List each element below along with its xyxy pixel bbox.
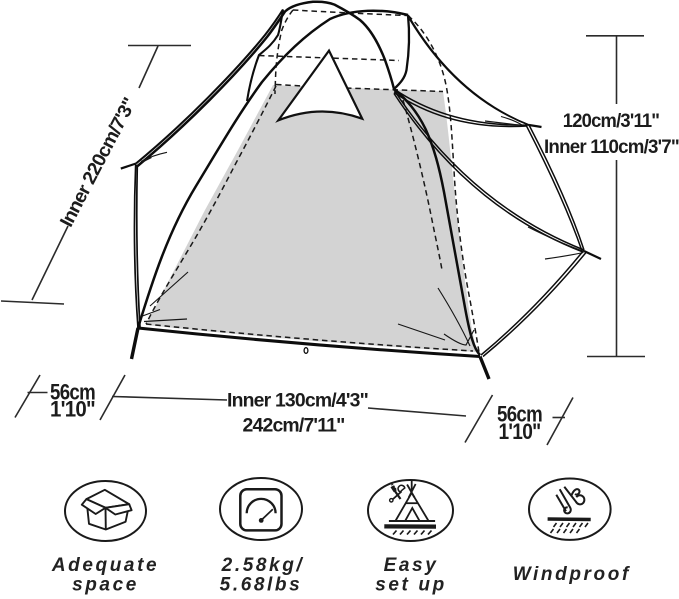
svg-text:Inner 220cm/7'3": Inner 220cm/7'3" <box>56 95 140 231</box>
svg-text:Easy: Easy <box>384 555 439 576</box>
svg-text:Inner 130cm/4'3": Inner 130cm/4'3" <box>227 391 368 412</box>
svg-text:2.58kg/: 2.58kg/ <box>221 555 305 576</box>
svg-text:set up: set up <box>375 575 447 596</box>
svg-text:120cm/3'11": 120cm/3'11" <box>563 111 660 132</box>
svg-text:242cm/7'11": 242cm/7'11" <box>243 416 345 437</box>
svg-text:space: space <box>72 575 139 596</box>
svg-text:Inner 110cm/3'7": Inner 110cm/3'7" <box>544 137 679 158</box>
svg-text:1'10": 1'10" <box>499 419 541 444</box>
svg-text:5.68lbs: 5.68lbs <box>220 575 303 596</box>
svg-text:1'10": 1'10" <box>50 397 95 422</box>
svg-text:Windproof: Windproof <box>513 564 631 585</box>
svg-text:Adequate: Adequate <box>51 555 159 576</box>
